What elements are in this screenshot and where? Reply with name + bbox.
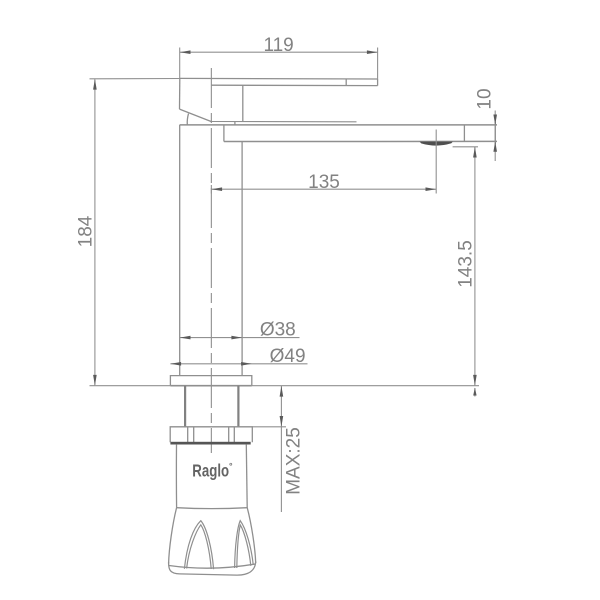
svg-text:10: 10 bbox=[474, 88, 495, 109]
svg-text:184: 184 bbox=[75, 215, 96, 247]
svg-text:Ø38: Ø38 bbox=[260, 319, 296, 340]
svg-text:135: 135 bbox=[308, 172, 340, 193]
svg-text:Ø49: Ø49 bbox=[270, 346, 306, 367]
svg-text:Raglo: Raglo bbox=[192, 460, 229, 480]
svg-text:143.5: 143.5 bbox=[456, 240, 477, 288]
svg-text:119: 119 bbox=[263, 35, 293, 56]
svg-text:MAX:25: MAX:25 bbox=[284, 427, 305, 495]
